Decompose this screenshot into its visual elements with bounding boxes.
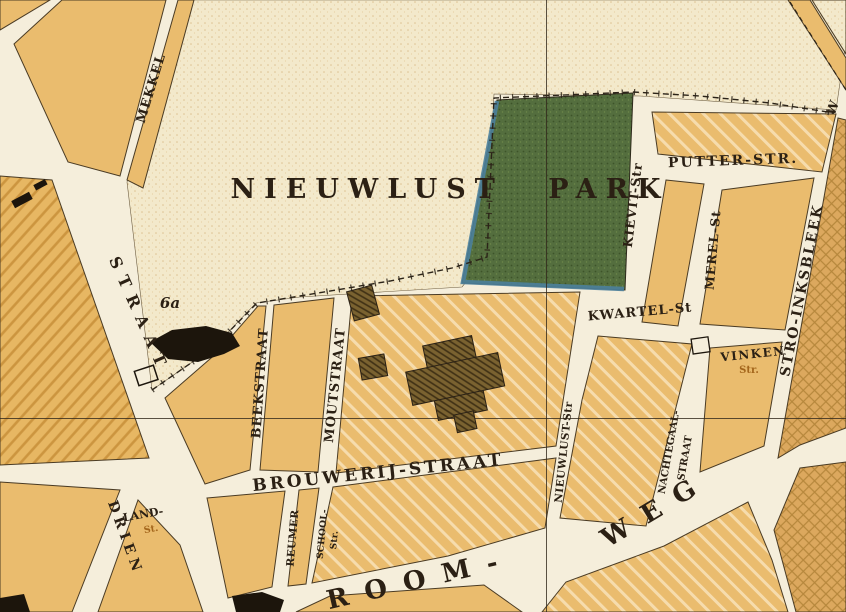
- vintage-city-map: NIEUWLUST PARK PUTTER-STR. KIEVIT-Str ME…: [0, 0, 846, 612]
- street-label-vinken-suffix: Str.: [739, 365, 759, 376]
- map-canvas[interactable]: NIEUWLUST PARK PUTTER-STR. KIEVIT-Str ME…: [0, 0, 846, 612]
- building-outline-vinken: [691, 337, 710, 354]
- park-name-label: NIEUWLUST PARK: [231, 174, 670, 205]
- building-hatched: [358, 354, 387, 380]
- street-label-school-2: Str.: [329, 530, 341, 550]
- parcel-label-6a: 6a: [160, 294, 180, 312]
